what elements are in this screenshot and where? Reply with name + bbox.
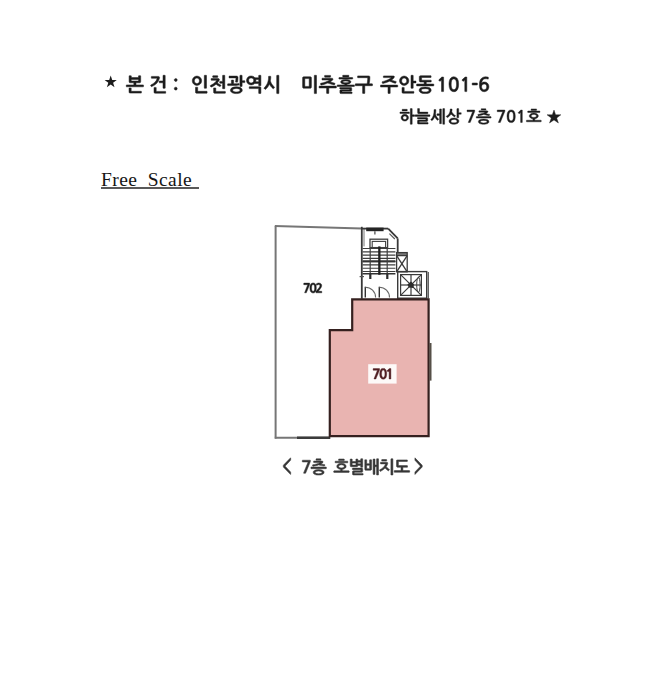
svg-text:Free Scale: Free Scale	[101, 169, 192, 190]
